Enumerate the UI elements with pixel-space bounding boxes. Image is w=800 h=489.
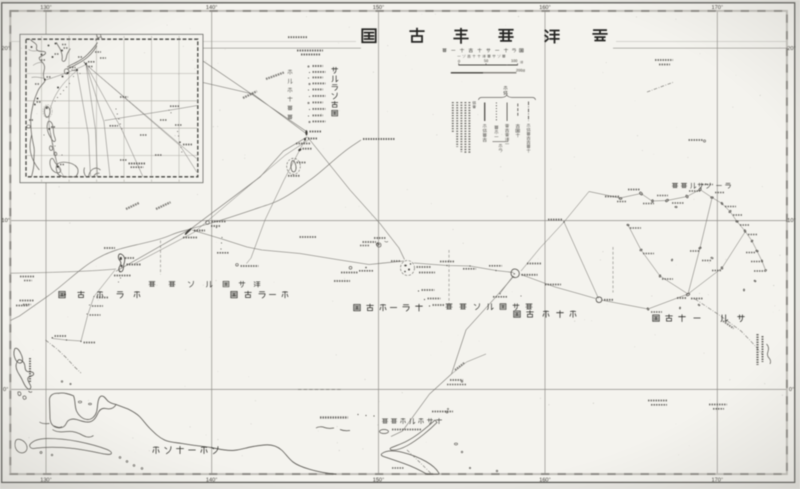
svg-text:10°: 10° — [1, 218, 9, 224]
svg-text:150°: 150° — [373, 478, 385, 484]
svg-text:0: 0 — [458, 59, 460, 63]
svg-text:170°: 170° — [712, 5, 724, 11]
svg-text:10°: 10° — [787, 218, 795, 224]
svg-text:0°: 0° — [789, 387, 794, 393]
svg-text:170°: 170° — [712, 478, 724, 484]
svg-text:20°: 20° — [1, 46, 9, 52]
svg-text:130°: 130° — [40, 5, 52, 11]
svg-text:140°: 140° — [206, 478, 218, 484]
svg-text:50: 50 — [484, 59, 488, 63]
svg-text:140°: 140° — [206, 5, 218, 11]
svg-text:160°: 160° — [539, 5, 551, 11]
svg-text:20°: 20° — [787, 46, 795, 52]
svg-text:160°: 160° — [539, 478, 551, 484]
svg-text:100: 100 — [511, 59, 517, 63]
svg-text:150°: 150° — [373, 5, 385, 11]
svg-text:200: 200 — [516, 68, 522, 72]
svg-text:130°: 130° — [40, 478, 52, 484]
svg-text:0°: 0° — [3, 387, 8, 393]
